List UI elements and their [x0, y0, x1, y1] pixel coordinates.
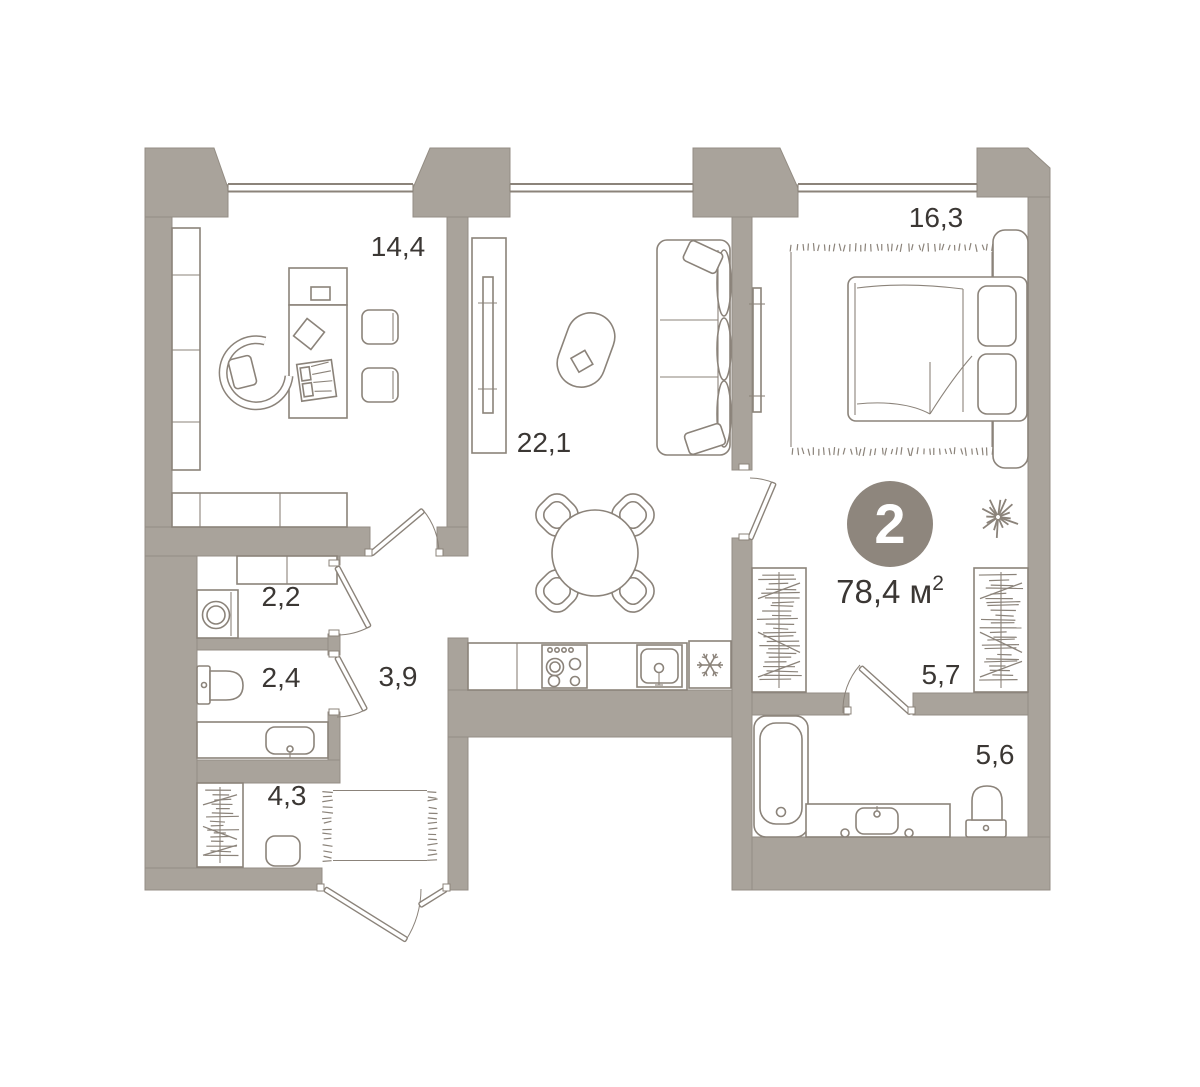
wall-living-bedroom-upper — [732, 217, 752, 470]
room-entry: 4,3 — [197, 780, 438, 867]
room-wc: 2,4 — [197, 662, 328, 758]
office-chair — [223, 340, 289, 406]
bed-pillow-1 — [978, 286, 1016, 346]
wall-pillar-b — [693, 148, 798, 217]
room-office: 14,4 — [172, 228, 425, 527]
door-closet-bathroom — [843, 665, 915, 715]
office-laptop — [297, 360, 337, 402]
wall-wc-right — [328, 712, 340, 760]
coffee-table — [550, 306, 621, 394]
dining-table — [552, 510, 638, 596]
bed-pillow-2 — [978, 354, 1016, 414]
closet-wardrobe-left — [752, 568, 806, 692]
wall-bottom-left — [145, 868, 322, 890]
room-label-hallway: 3,9 — [379, 661, 418, 692]
wall-bottom-right — [752, 837, 1050, 890]
type-badge-number: 2 — [874, 492, 905, 555]
windows — [228, 184, 977, 192]
door-wc — [329, 651, 367, 717]
room-living-kitchen: 22,1 — [468, 238, 731, 690]
door-office — [365, 508, 443, 556]
floor-plan: 14,4 — [0, 0, 1200, 1087]
bathroom-toilet — [966, 786, 1006, 837]
bedroom-tv — [753, 288, 761, 412]
room-label-entry: 4,3 — [268, 780, 307, 811]
office-shelf-column — [172, 228, 200, 470]
door-bedroom — [739, 464, 776, 540]
wc-sink — [197, 722, 328, 758]
wc-toilet — [197, 666, 243, 704]
bed — [848, 277, 1027, 421]
room-label-office: 14,4 — [371, 231, 426, 262]
window-office — [228, 184, 413, 192]
bathroom-vanity — [806, 804, 950, 837]
room-bedroom: 2 78,4 м2 16,3 — [749, 202, 1028, 610]
wall-closet-bath-right — [913, 693, 1028, 715]
sofa — [657, 239, 731, 455]
floor-plan-svg: 14,4 — [0, 0, 1200, 1087]
entry-wardrobe — [197, 783, 243, 867]
washing-machine — [197, 590, 238, 638]
office-monitor — [311, 287, 330, 300]
wall-top-left-block — [145, 148, 228, 217]
room-label-wc: 2,4 — [262, 662, 301, 693]
plant-icon — [982, 499, 1018, 538]
wall-office-bottom — [145, 527, 370, 556]
room-label-closet: 5,7 — [922, 659, 961, 690]
dining-set — [530, 488, 660, 618]
wall-pillar-a — [413, 148, 510, 217]
room-label-living: 22,1 — [517, 427, 572, 458]
wall-office-living — [447, 217, 468, 527]
room-label-laundry: 2,2 — [262, 581, 301, 612]
wall-living-bedroom-lower — [732, 538, 752, 890]
room-laundry: 2,2 — [197, 556, 337, 638]
door-entry — [317, 884, 450, 942]
wall-closet-bath-left — [752, 693, 849, 715]
room-bathroom: 5,6 — [754, 716, 1014, 837]
bathtub — [754, 716, 808, 837]
wall-kitchen-bottom — [448, 690, 752, 737]
wall-laundry-wc — [197, 638, 340, 650]
window-bedroom — [798, 184, 977, 192]
total-area-label: 78,4 м2 — [836, 572, 944, 610]
wall-hall-right — [448, 638, 468, 890]
tv — [483, 277, 493, 413]
room-label-bedroom: 16,3 — [909, 202, 964, 233]
wall-right — [1028, 197, 1050, 890]
window-living — [510, 184, 693, 192]
entry-stool — [266, 836, 300, 866]
wall-left-lower — [145, 527, 197, 890]
kitchen — [468, 641, 731, 690]
room-hallway: 3,9 — [379, 661, 418, 692]
room-label-bathroom: 5,6 — [976, 739, 1015, 770]
office-cabinet-row — [172, 493, 347, 527]
entry-rug — [322, 791, 438, 862]
closet-wardrobe-right — [974, 568, 1028, 692]
